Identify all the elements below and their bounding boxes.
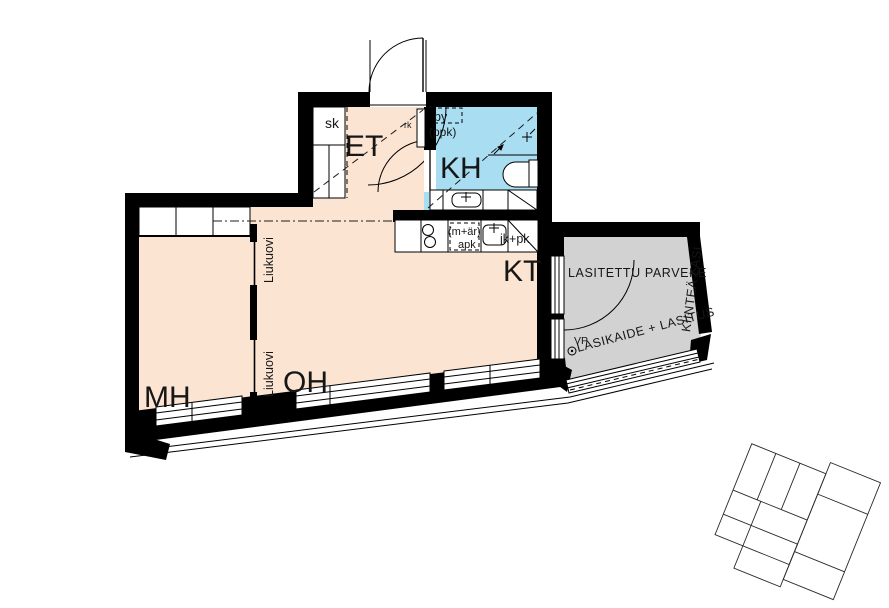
wall-top-right	[426, 92, 552, 107]
label-fridge-jkpk: jk+pk	[499, 232, 530, 246]
key-plan-block-c	[734, 525, 798, 586]
room-label-mh: MH	[144, 381, 191, 414]
wall-balcony-divider	[537, 220, 551, 378]
floor-plan-page: MH OH KT KH ET sk rk py (ppk) (m+är) apk…	[0, 0, 889, 608]
floor-drain-dot	[571, 350, 573, 352]
label-washer-py: py	[434, 110, 448, 124]
key-plan-block-b	[783, 463, 880, 600]
key-plan-b-div1	[818, 494, 868, 514]
key-plan-a-div3	[733, 490, 807, 520]
floor-plan-drawing: MH OH KT KH ET sk rk py (ppk) (m+är) apk…	[0, 0, 889, 608]
wall-partition-tick1	[250, 224, 257, 242]
label-kitchen-note: (m+är)	[448, 226, 481, 238]
wall-divider-frame-b	[551, 314, 564, 319]
key-plan-a-div1	[757, 453, 776, 499]
balcony-door-frame	[551, 256, 564, 314]
wall-balcony-top	[545, 222, 700, 237]
label-electrical-rk: rk	[404, 120, 412, 130]
room-label-et: ET	[345, 130, 383, 163]
label-closet-sk: sk	[325, 115, 340, 131]
key-plan-a-div2	[781, 463, 800, 509]
wall-mh-top	[125, 193, 313, 207]
key-plan	[706, 433, 880, 607]
label-sliding-door-upper: Liukuovi	[262, 237, 276, 283]
electrical-cabinet-box	[417, 109, 425, 147]
wall-partition-mid	[250, 285, 257, 340]
key-plan-b-div2	[794, 552, 844, 572]
label-dishwasher-apk: apk	[458, 239, 476, 251]
wall-mh-left	[125, 193, 139, 421]
wall-et-left	[298, 92, 313, 207]
balcony-window-frame	[551, 319, 564, 359]
room-label-oh: OH	[283, 366, 328, 399]
wall-kh-right	[537, 92, 552, 222]
key-plan-block-a	[715, 444, 826, 565]
key-plan-a-notch	[723, 490, 761, 525]
label-floor-drain-vp: VP	[574, 335, 588, 347]
toilet-tank	[529, 160, 538, 187]
toilet-bowl	[503, 162, 529, 187]
entry-recess	[370, 40, 426, 92]
room-label-kh: KH	[440, 152, 482, 185]
wall-divider-frame-a	[551, 237, 564, 256]
room-label-kt: KT	[503, 255, 541, 288]
label-sliding-door-lower: Liukuovi	[262, 351, 276, 397]
label-washer-ppk: (ppk)	[429, 125, 456, 139]
